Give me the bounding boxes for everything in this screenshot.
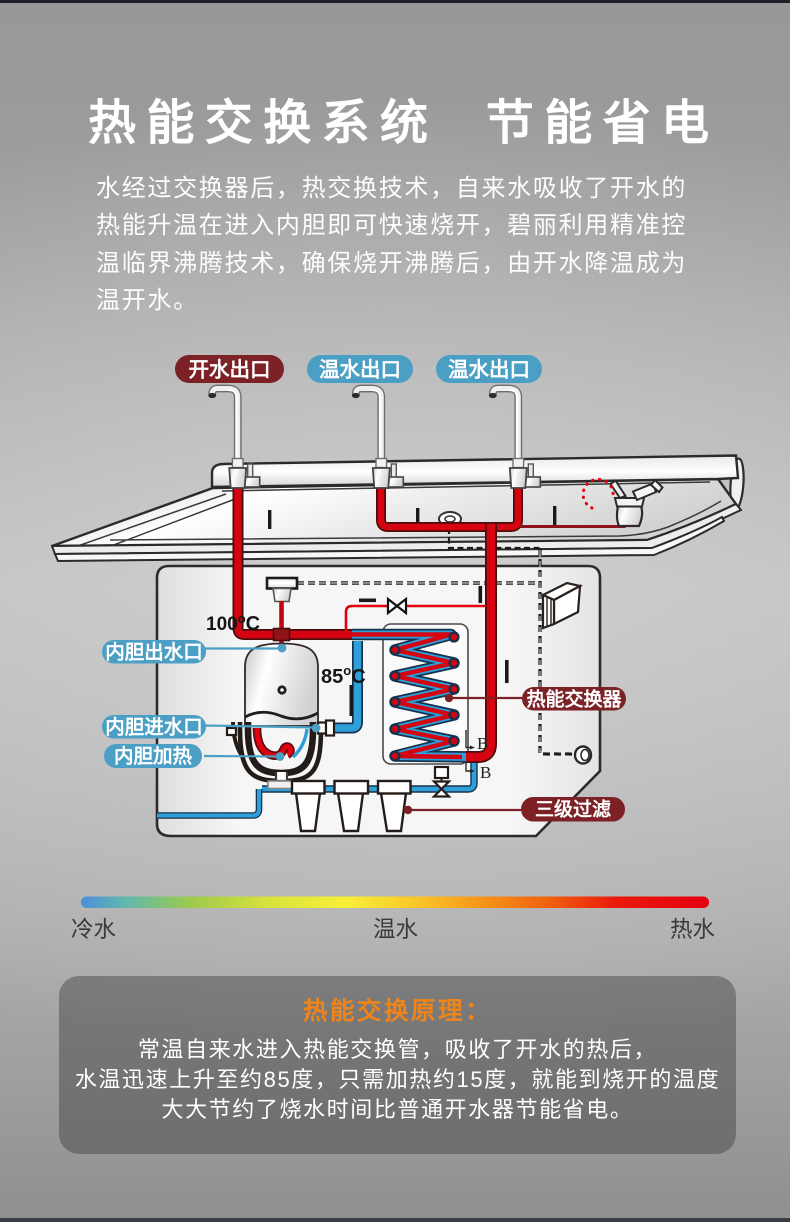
- svg-text:100oC: 100oC: [206, 611, 260, 635]
- svg-text:内胆加热: 内胆加热: [114, 745, 193, 768]
- svg-text:温水出口: 温水出口: [319, 358, 401, 382]
- svg-text:温水: 温水: [373, 917, 418, 942]
- svg-text:开水出口: 开水出口: [189, 358, 271, 382]
- svg-text:热能交换器: 热能交换器: [526, 688, 622, 711]
- svg-text:三级过滤: 三级过滤: [535, 798, 611, 821]
- svg-text:冷水: 冷水: [71, 917, 116, 942]
- svg-text:温水出口: 温水出口: [448, 358, 530, 382]
- svg-text:B: B: [477, 734, 488, 753]
- svg-text:内胆出水口: 内胆出水口: [105, 641, 203, 664]
- svg-text:热水: 热水: [670, 917, 715, 942]
- svg-text:内胆进水口: 内胆进水口: [105, 716, 203, 739]
- svg-text:B: B: [480, 763, 491, 782]
